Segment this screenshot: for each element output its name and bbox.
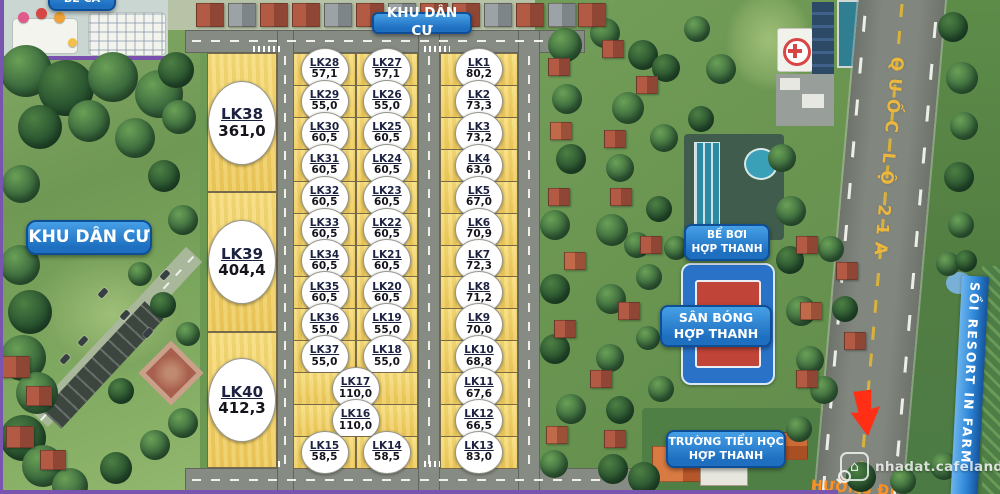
left-border-strip	[0, 0, 3, 494]
residential-area-label-top: KHU DÂN CƯ	[372, 12, 472, 34]
plot-area: 60,5	[374, 133, 400, 144]
tree	[168, 205, 198, 235]
tree	[938, 12, 968, 42]
tree	[168, 408, 198, 438]
tree	[148, 160, 180, 192]
tree	[650, 124, 678, 152]
football-field-label: SÂN BÓNGHỢP THANH	[660, 305, 772, 347]
house	[292, 3, 320, 27]
tree	[540, 334, 570, 364]
plot-LK14: LK1458,5	[356, 436, 418, 469]
dome-icon	[18, 12, 29, 23]
house	[228, 3, 256, 27]
house	[2, 356, 30, 378]
house	[564, 252, 586, 270]
plot-badge: LK39404,4	[208, 220, 276, 304]
plot-id: LK39	[221, 246, 263, 262]
school-label: TRƯỜNG TIỂU HỌCHỢP THANH	[666, 430, 786, 468]
tree	[552, 84, 582, 114]
tree	[2, 165, 40, 203]
watermark-house-icon: ⌂	[840, 452, 869, 481]
tree	[540, 210, 570, 240]
tree	[612, 92, 644, 124]
pool-label: BỂ BƠIHỢP THANH	[684, 224, 770, 261]
plot-area: 404,4	[218, 262, 265, 278]
plot-area: 60,5	[312, 197, 338, 208]
tree	[115, 118, 155, 158]
house	[610, 188, 632, 206]
lap-pool	[694, 142, 720, 234]
tree	[540, 450, 568, 478]
tree	[596, 344, 624, 372]
tree	[636, 326, 660, 350]
plot-area: 60,5	[312, 165, 338, 176]
tree	[128, 262, 152, 286]
road-dash	[428, 56, 430, 464]
plot-badge: LK1458,5	[363, 431, 411, 474]
house	[196, 3, 224, 27]
tree	[646, 196, 672, 222]
house	[618, 302, 640, 320]
magnifier-icon	[838, 470, 851, 483]
house	[550, 122, 572, 140]
site-plan-map: LK38361,0LK39404,4LK40412,3LK2857,1LK295…	[0, 0, 1000, 494]
tree	[818, 236, 844, 262]
tree	[88, 52, 138, 102]
hospital-rooftop	[777, 28, 813, 72]
red-arrow-icon	[848, 389, 883, 438]
bottom-border-strip	[0, 490, 838, 494]
residential-area-label-left: KHU DÂN CƯ	[26, 220, 152, 255]
house	[636, 76, 658, 94]
house	[546, 426, 568, 444]
plot-area: 55,0	[312, 357, 338, 368]
plot-area: 58,5	[312, 452, 338, 463]
house	[604, 430, 626, 448]
tree	[606, 154, 634, 182]
tree	[786, 416, 812, 442]
tree	[636, 264, 662, 290]
plot-area: 73,2	[466, 133, 492, 144]
plot-area: 361,0	[218, 123, 265, 139]
plot-LK15: LK1558,5	[293, 436, 356, 469]
tree	[948, 212, 974, 238]
tree	[108, 378, 134, 404]
house	[590, 370, 612, 388]
house	[578, 3, 606, 27]
plot-id: LK17	[341, 377, 370, 388]
playground-icon	[68, 38, 77, 47]
house	[548, 58, 570, 76]
kindergarten-main	[88, 12, 166, 56]
plot-area: 55,0	[312, 101, 338, 112]
plot-badge: LK1558,5	[301, 431, 349, 474]
tree	[955, 250, 977, 272]
road-dash	[528, 56, 530, 464]
plot-badge: LK1383,0	[455, 431, 503, 474]
highway-name-label: QUỐC LỘ 21A	[836, 53, 940, 266]
tree	[176, 322, 200, 346]
tree	[684, 16, 710, 42]
road-dash	[284, 56, 286, 464]
tree	[150, 292, 176, 318]
house	[836, 262, 858, 280]
tree	[540, 274, 570, 304]
plot-area: 58,5	[374, 452, 400, 463]
tree	[606, 396, 634, 424]
tree	[776, 196, 806, 226]
plot-LK40: LK40412,3	[207, 332, 277, 468]
dome-icon	[54, 12, 65, 23]
tree	[8, 290, 52, 334]
plot-area: 83,0	[466, 452, 492, 463]
house	[484, 3, 512, 27]
tree	[596, 214, 628, 246]
tree	[556, 394, 586, 424]
plot-area: 73,3	[466, 101, 492, 112]
tree	[768, 144, 796, 172]
house	[324, 3, 352, 27]
tree	[548, 28, 582, 62]
house	[800, 302, 822, 320]
plot-area: 60,5	[374, 197, 400, 208]
tree	[648, 376, 674, 402]
house	[26, 386, 52, 406]
plot-id: LK38	[221, 106, 263, 122]
plot-area: 110,0	[339, 421, 372, 432]
house	[602, 40, 624, 58]
plot-LK38: LK38361,0	[207, 53, 277, 192]
plot-badge: LK40412,3	[208, 358, 276, 442]
plot-area: 67,0	[466, 197, 492, 208]
tree	[556, 144, 586, 174]
plot-id: LK40	[221, 384, 263, 400]
house	[260, 3, 288, 27]
plot-area: 55,0	[374, 357, 400, 368]
tree	[706, 54, 736, 84]
tree	[68, 100, 110, 142]
watermark: ⌂ nhadat.cafeland.vn	[840, 452, 1000, 481]
tree	[598, 454, 628, 484]
house	[548, 3, 576, 27]
house	[516, 3, 544, 27]
tree	[162, 100, 196, 134]
plot-id: LK11	[464, 377, 493, 388]
house	[40, 450, 66, 470]
house	[554, 320, 576, 338]
plot-LK13: LK1383,0	[440, 436, 518, 469]
plot-area: 55,0	[374, 101, 400, 112]
tree	[944, 162, 974, 192]
house	[796, 236, 818, 254]
plot-id: LK16	[341, 409, 370, 420]
corner-area-label: BỂ CÁ	[48, 0, 116, 11]
plot-LK39: LK39404,4	[207, 192, 277, 332]
plot-area: 412,3	[218, 400, 265, 416]
plot-LK16: LK16110,0	[293, 404, 418, 437]
house	[548, 188, 570, 206]
tree	[950, 112, 978, 140]
house	[6, 426, 34, 448]
tree	[158, 52, 194, 88]
plot-area: 60,5	[312, 133, 338, 144]
plot-area: 60,5	[374, 165, 400, 176]
plot-id: LK12	[464, 409, 493, 420]
tree	[140, 430, 170, 460]
tree	[832, 296, 858, 322]
plot-badge: LK38361,0	[208, 81, 276, 165]
plot-area: 63,0	[466, 165, 492, 176]
house	[604, 130, 626, 148]
tree	[946, 62, 978, 94]
tree	[688, 106, 714, 132]
house	[640, 236, 662, 254]
tree	[100, 452, 132, 484]
house	[796, 370, 818, 388]
tree	[18, 105, 62, 149]
road-dash	[192, 479, 640, 481]
dome-icon	[36, 8, 47, 19]
building-pads	[776, 74, 834, 126]
watermark-text: nhadat.cafeland.vn	[875, 459, 1000, 475]
house	[844, 332, 866, 350]
